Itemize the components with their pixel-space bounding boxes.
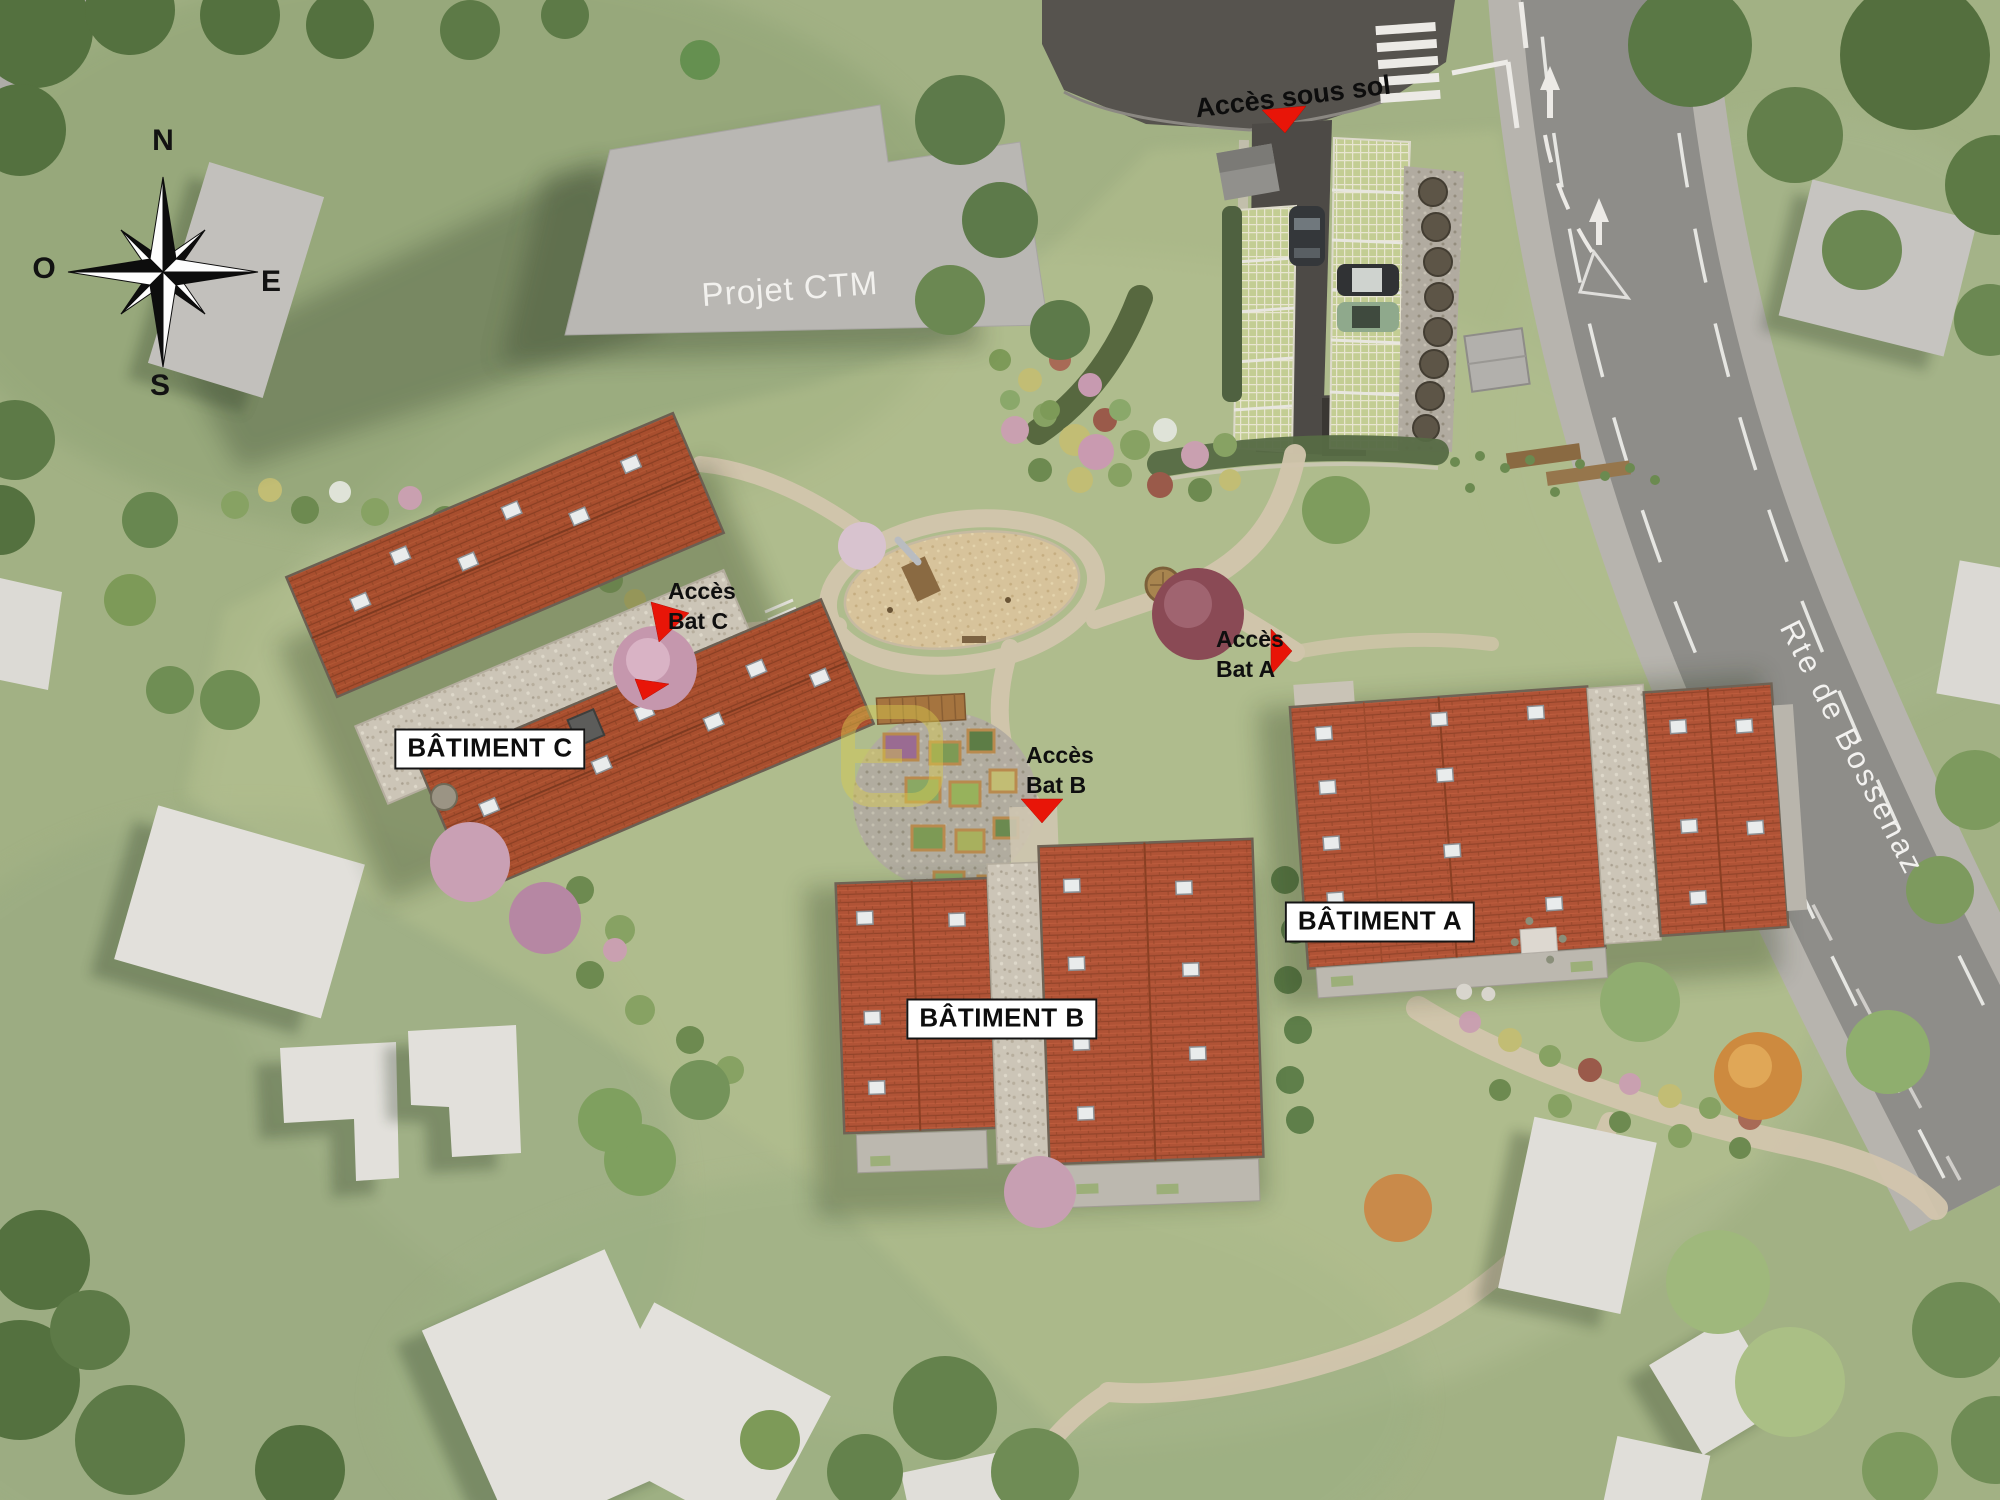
access-bat-a-label: Accès Bat A (1216, 624, 1284, 684)
car (1289, 206, 1325, 266)
site-plan: N O E S Projet CTM Accès sous sol Accès … (0, 0, 2000, 1500)
batiment-c-label: BÂTIMENT C (394, 729, 585, 770)
car (1337, 264, 1399, 296)
compass-south-label: S (150, 369, 170, 403)
access-bat-a-line2: Bat A (1216, 654, 1284, 684)
shed (1464, 328, 1529, 392)
compass-north-label: N (152, 124, 174, 158)
batiment-a-building (1258, 650, 1813, 1013)
access-bat-c-line1: Accès (668, 576, 736, 606)
access-bat-b-line2: Bat B (1026, 770, 1094, 800)
access-bat-b-label: Accès Bat B (1026, 740, 1094, 800)
access-bat-a-line1: Accès (1216, 624, 1284, 654)
access-bat-c-line2: Bat C (668, 606, 736, 636)
car (1337, 302, 1399, 332)
batiment-a-label: BÂTIMENT A (1285, 902, 1475, 943)
site-render (0, 0, 2000, 1500)
access-bat-b-line1: Accès (1026, 740, 1094, 770)
batiment-b-label: BÂTIMENT B (906, 999, 1097, 1040)
garage (1216, 144, 1279, 201)
access-bat-c-label: Accès Bat C (668, 576, 736, 636)
compass-east-label: E (261, 265, 281, 299)
compass-west-label: O (32, 252, 55, 286)
